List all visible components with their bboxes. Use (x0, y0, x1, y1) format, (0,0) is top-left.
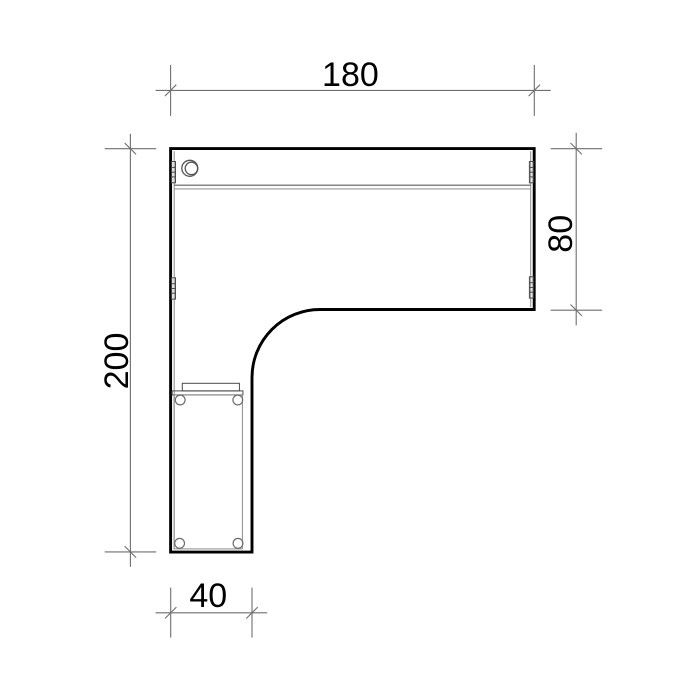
svg-text:40: 40 (189, 577, 227, 615)
svg-text:200: 200 (98, 333, 136, 390)
svg-text:180: 180 (322, 56, 379, 94)
svg-text:80: 80 (542, 215, 580, 253)
